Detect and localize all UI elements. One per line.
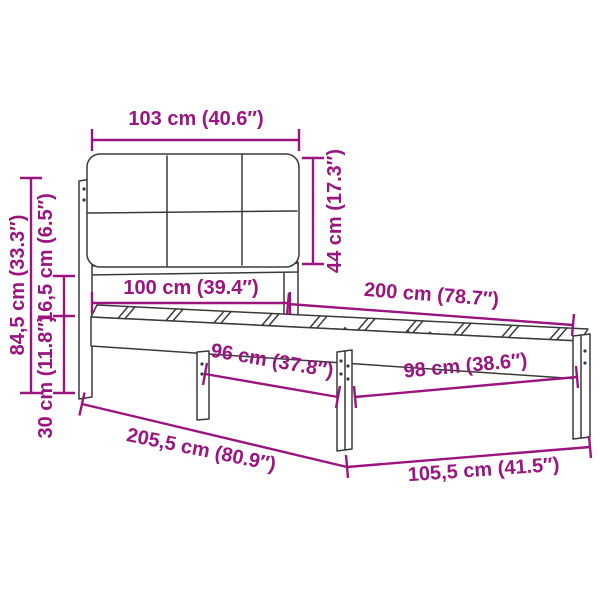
tick xyxy=(354,386,356,408)
dimension-label-frame-height: 16,5 cm (6.5″) xyxy=(35,193,57,323)
dimension-total-width: 105,5 cm (41.5″) xyxy=(347,436,591,486)
dimension-headboard-width: 103 cm (40.6″) xyxy=(92,108,299,151)
bed-dimension-diagram: 103 cm (40.6″) 44 cm (17.3″) 84,5 cm (33… xyxy=(0,0,600,600)
headboard-cushion xyxy=(87,154,299,267)
rear-middle-leg xyxy=(197,351,209,420)
dimension-label-total-width: 105,5 cm (41.5″) xyxy=(407,454,560,487)
front-middle-leg xyxy=(337,350,352,451)
footboard-post xyxy=(573,334,590,439)
dimension-label-total-height: 84,5 cm (33.3″) xyxy=(7,215,29,356)
dimension-label-headboard-height: 44 cm (17.3″) xyxy=(324,149,346,273)
dimension-label-mattress-length: 200 cm (78.7″) xyxy=(363,279,499,311)
dimension-label-headboard-width: 103 cm (40.6″) xyxy=(128,108,263,130)
dimension-label-mattress-width: 100 cm (39.4″) xyxy=(123,277,258,299)
tick xyxy=(589,436,591,458)
dimension-label-leg-height: 30 cm (11.8″) xyxy=(35,316,57,439)
dimension-headboard-height: 44 cm (17.3″) xyxy=(302,149,346,273)
diagram-canvas: 103 cm (40.6″) 44 cm (17.3″) 84,5 cm (33… xyxy=(0,0,600,600)
dimension-leg-height: 30 cm (11.8″) xyxy=(35,316,75,439)
dimension-total-length: 205,5 cm (80.9″) xyxy=(79,393,348,479)
dimension-frame-height: 16,5 cm (6.5″) xyxy=(35,193,75,323)
